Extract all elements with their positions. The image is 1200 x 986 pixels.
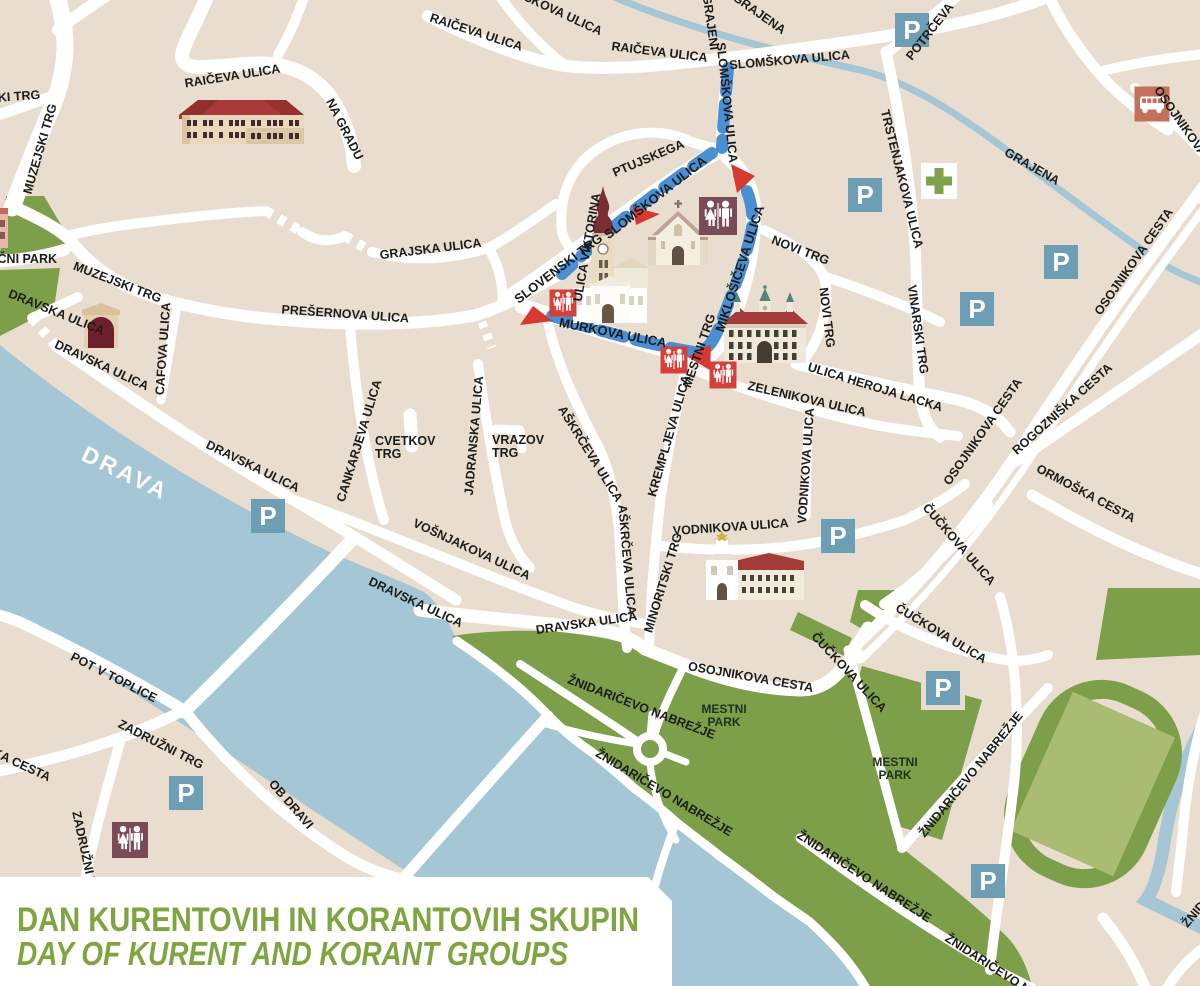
svg-text:MESTNI: MESTNI <box>872 755 917 769</box>
svg-text:PARK: PARK <box>707 715 740 729</box>
svg-text:TRG: TRG <box>375 447 401 461</box>
svg-text:VRAZOV: VRAZOV <box>492 433 545 447</box>
svg-text:CVETLIČNI PARK: CVETLIČNI PARK <box>0 251 57 266</box>
svg-text:MESTNI: MESTNI <box>701 702 746 716</box>
svg-text:CVETKOV: CVETKOV <box>375 434 436 448</box>
svg-text:TRG: TRG <box>492 446 518 460</box>
svg-text:PARK: PARK <box>878 768 911 782</box>
svg-text:DAN KURENTOVIH IN KORANTOVIH S: DAN KURENTOVIH IN KORANTOVIH SKUPIN <box>17 901 639 939</box>
svg-text:DAY OF KURENT AND KORANT GROUP: DAY OF KURENT AND KORANT GROUPS <box>17 935 568 972</box>
